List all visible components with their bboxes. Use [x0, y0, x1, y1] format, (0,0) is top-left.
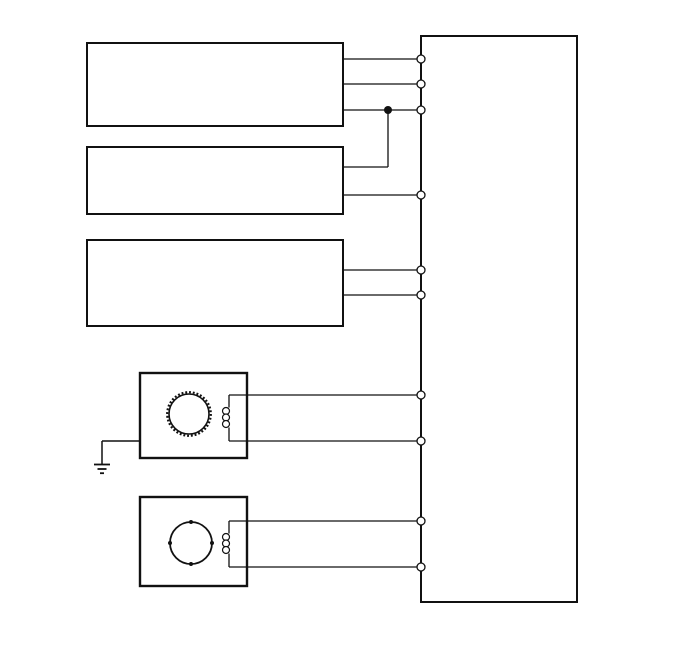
terminal-5	[417, 266, 425, 274]
terminal-1	[417, 55, 425, 63]
motor-b-rotor-pole-4	[168, 541, 172, 545]
motor-b-rotor	[170, 522, 212, 564]
terminal-4	[417, 191, 425, 199]
module-block-2	[87, 147, 343, 214]
terminal-2	[417, 80, 425, 88]
terminal-10	[417, 563, 425, 571]
motor-b-rotor-pole-2	[210, 541, 214, 545]
motor-b-coil-loop-3	[223, 547, 230, 554]
terminal-9	[417, 517, 425, 525]
junction-dot	[384, 106, 392, 114]
terminal-3	[417, 106, 425, 114]
motor-a-toothed-rotor	[169, 394, 209, 434]
controller-block	[421, 36, 577, 602]
schematic-svg	[0, 0, 688, 658]
motor-b-rotor-pole-1	[189, 520, 193, 524]
module-block-1	[87, 43, 343, 126]
motor-b-rotor-pole-3	[189, 562, 193, 566]
terminal-6	[417, 291, 425, 299]
schematic-canvas	[0, 0, 688, 658]
wiring-diagram	[0, 0, 688, 658]
terminal-8	[417, 437, 425, 445]
motor-a-coil-loop-3	[223, 421, 230, 428]
module-block-3	[87, 240, 343, 326]
terminal-7	[417, 391, 425, 399]
